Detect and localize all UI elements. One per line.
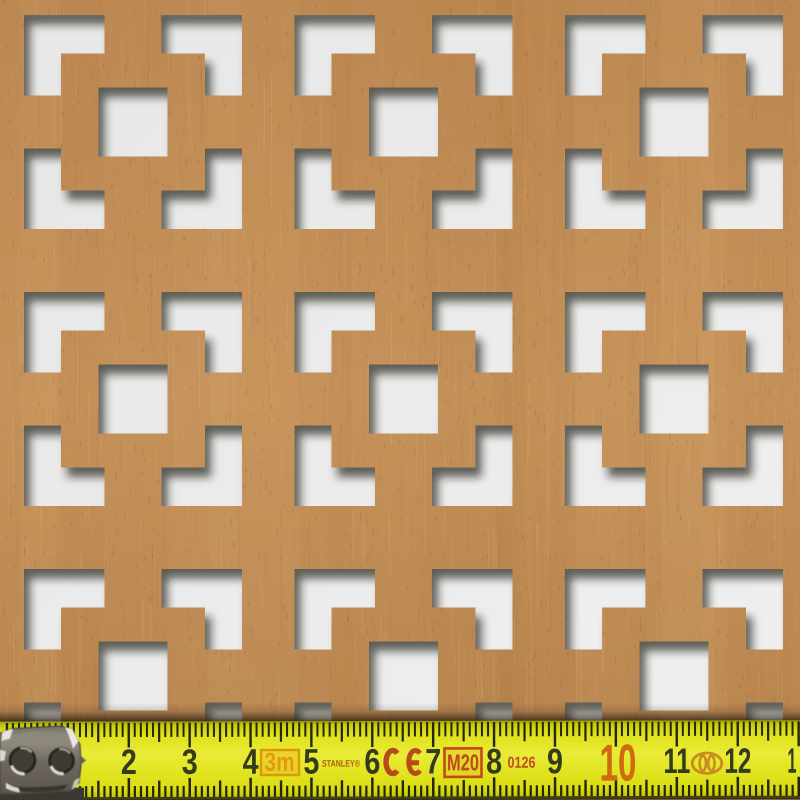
svg-text:1: 1 bbox=[787, 741, 796, 781]
svg-text:0126: 0126 bbox=[507, 755, 535, 772]
svg-text:7: 7 bbox=[425, 741, 441, 781]
svg-text:2: 2 bbox=[121, 742, 137, 782]
svg-text:4: 4 bbox=[243, 742, 259, 782]
svg-text:6: 6 bbox=[364, 742, 380, 782]
svg-text:STANLEY®: STANLEY® bbox=[322, 759, 360, 770]
svg-text:11: 11 bbox=[663, 741, 690, 781]
svg-text:9: 9 bbox=[547, 741, 563, 781]
svg-text:10: 10 bbox=[599, 735, 636, 793]
svg-text:12: 12 bbox=[724, 741, 751, 781]
svg-text:3m: 3m bbox=[264, 747, 294, 777]
svg-text:M20: M20 bbox=[447, 749, 479, 775]
svg-text:8: 8 bbox=[486, 741, 502, 781]
svg-text:5: 5 bbox=[303, 742, 319, 782]
svg-text:3: 3 bbox=[182, 742, 198, 782]
